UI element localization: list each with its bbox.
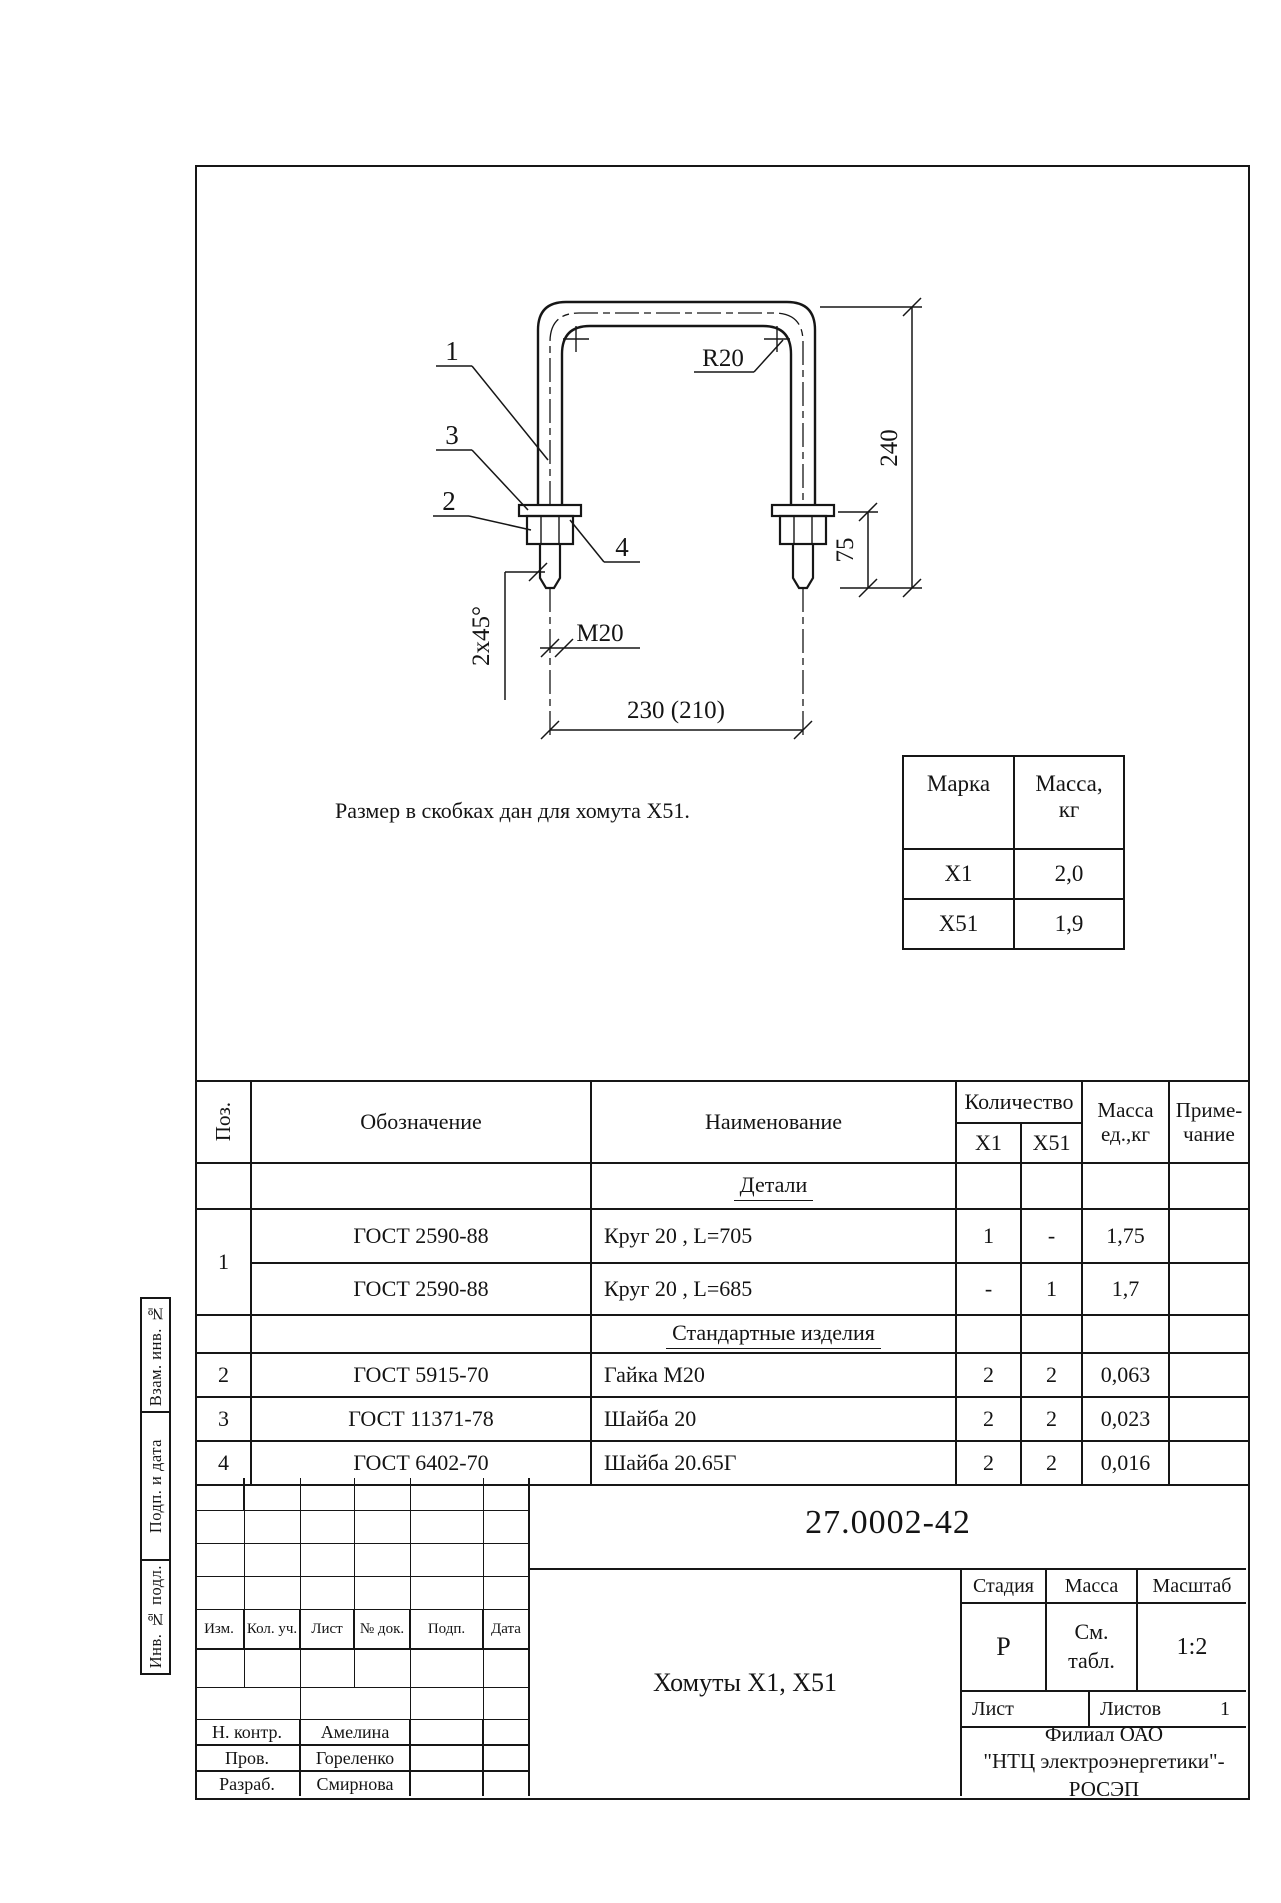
row-designation: ГОСТ 2590-88 xyxy=(251,1263,591,1315)
dim-chamfer-lines xyxy=(505,563,547,700)
parts-header-row1: Поз. Обозначение Наименование Количество… xyxy=(196,1081,1249,1123)
mass-table-row: Х51 1,9 xyxy=(903,899,1124,949)
row-name: Гайка М20 xyxy=(591,1353,956,1397)
sidebar-box-podp: Подп. и дата xyxy=(140,1411,171,1561)
row-name: Круг 20 , L=685 xyxy=(591,1263,956,1315)
row-pos: 3 xyxy=(196,1397,251,1441)
sidebar-label: Инв. № подл. xyxy=(146,1565,166,1668)
header-mass: Массаед.,кг xyxy=(1082,1081,1169,1163)
mark-x1: Х1 xyxy=(903,849,1014,899)
dim-radius-label: R20 xyxy=(702,345,744,372)
section-row-standard: Стандартные изделия xyxy=(196,1315,1249,1353)
callout-2-label: 2 xyxy=(442,486,456,516)
dim-chamfer-label: 2х45° xyxy=(468,606,495,666)
row-qty-x1: 2 xyxy=(956,1353,1021,1397)
row-designation: ГОСТ 5915-70 xyxy=(251,1353,591,1397)
row-designation: ГОСТ 2590-88 xyxy=(251,1209,591,1263)
mass-table: Марка Масса, кг Х1 2,0 Х51 1,9 xyxy=(902,755,1125,950)
callout-1-label: 1 xyxy=(445,336,459,366)
sig-name: Гореленко xyxy=(301,1746,411,1772)
right-nut xyxy=(780,516,826,544)
parts-row: 3 ГОСТ 11371-78 Шайба 20 2 2 0,023 xyxy=(196,1397,1249,1441)
section-standard: Стандартные изделия xyxy=(591,1315,956,1353)
callout-4-label: 4 xyxy=(615,532,629,562)
mass-table-col-mass: Масса, кг xyxy=(1014,756,1124,849)
mass-label: Масса xyxy=(1047,1570,1138,1604)
row-name: Шайба 20 xyxy=(591,1397,956,1441)
row-qty-x1: 2 xyxy=(956,1397,1021,1441)
row-designation: ГОСТ 11371-78 xyxy=(251,1397,591,1441)
sidebar-label: Подп. и дата xyxy=(146,1439,166,1533)
doc-number: 27.0002-42 xyxy=(530,1478,1246,1570)
header-note: Приме-чание xyxy=(1169,1081,1249,1163)
rev-header-podp: Подп. xyxy=(411,1610,484,1650)
scale-label: Масштаб xyxy=(1138,1570,1246,1604)
sig-role: Пров. xyxy=(195,1746,301,1772)
parts-row: 2 ГОСТ 5915-70 Гайка М20 2 2 0,063 xyxy=(196,1353,1249,1397)
sidebar-box-vzam: Взам. инв. № xyxy=(140,1297,171,1413)
header-name: Наименование xyxy=(591,1081,956,1163)
header-designation: Обозначение xyxy=(251,1081,591,1163)
row-qty-x51: 1 xyxy=(1021,1263,1082,1315)
mass-x51: 1,9 xyxy=(1014,899,1124,949)
organization: Филиал ОАО "НТЦ электроэнергетики"- РОСЭ… xyxy=(962,1728,1246,1796)
header-qty-x1: Х1 xyxy=(956,1123,1021,1163)
section-details: Детали xyxy=(591,1163,956,1209)
left-nut xyxy=(527,516,573,544)
row-qty-x51: - xyxy=(1021,1209,1082,1263)
header-qty-x51: Х51 xyxy=(1021,1123,1082,1163)
title-block: Изм. Кол. уч. Лист № док. Подп. Дата Н. … xyxy=(195,1478,1246,1796)
rod-inner-line xyxy=(562,326,791,505)
row-mass: 1,75 xyxy=(1082,1209,1169,1263)
dim-height-label: 240 xyxy=(876,429,903,467)
right-thread-stub xyxy=(793,544,813,588)
row-pos: 1 xyxy=(196,1209,251,1315)
sidebar-label: Взам. инв. № xyxy=(146,1304,166,1406)
header-pos: Поз. xyxy=(196,1081,251,1163)
rev-header-data: Дата xyxy=(484,1610,530,1650)
row-pos: 2 xyxy=(196,1353,251,1397)
callout-3-label: 3 xyxy=(445,420,459,450)
dim-thread-len-label: 75 xyxy=(832,538,859,563)
rod-outer-line xyxy=(538,302,815,505)
sheets-value: 1 xyxy=(1220,1698,1230,1721)
sig-name: Смирнова xyxy=(301,1772,411,1796)
row-qty-x51: 2 xyxy=(1021,1353,1082,1397)
row-mass: 0,023 xyxy=(1082,1397,1169,1441)
mass-table-header: Марка Масса, кг xyxy=(903,756,1124,849)
parts-table: Поз. Обозначение Наименование Количество… xyxy=(195,1080,1250,1486)
mark-x51: Х51 xyxy=(903,899,1014,949)
mass-value: См.табл. xyxy=(1047,1604,1138,1692)
sidebar-box-inv: Инв. № подл. xyxy=(140,1559,171,1675)
rev-header-list: Лист xyxy=(301,1610,355,1650)
mass-x1: 2,0 xyxy=(1014,849,1124,899)
header-qty: Количество xyxy=(956,1081,1082,1123)
rev-header-dok: № док. xyxy=(355,1610,411,1650)
row-qty-x1: - xyxy=(956,1263,1021,1315)
sheets-label: Листов xyxy=(1100,1698,1161,1721)
callout-leaders xyxy=(433,366,640,562)
scale-value: 1:2 xyxy=(1138,1604,1246,1692)
bend-center-cross xyxy=(563,326,790,352)
row-name: Круг 20 , L=705 xyxy=(591,1209,956,1263)
row-qty-x1: 1 xyxy=(956,1209,1021,1263)
parts-row: ГОСТ 2590-88 Круг 20 , L=685 - 1 1,7 xyxy=(196,1263,1249,1315)
rod-centerline xyxy=(550,313,803,505)
section-row-details: Детали xyxy=(196,1163,1249,1209)
right-washer xyxy=(772,505,834,516)
mass-table-col-mark: Марка xyxy=(903,756,1014,849)
stage-value: Р xyxy=(962,1604,1047,1692)
left-washer xyxy=(519,505,581,516)
stage-label: Стадия xyxy=(962,1570,1047,1604)
rev-header-kol: Кол. уч. xyxy=(245,1610,301,1650)
bracket-note: Размер в скобках дан для хомута Х51. xyxy=(335,798,690,824)
rev-header-izm: Изм. xyxy=(195,1610,245,1650)
drawing-sheet: Взам. инв. № Подп. и дата Инв. № подл. xyxy=(0,0,1281,1903)
sig-name: Амелина xyxy=(301,1720,411,1746)
parts-row: 1 ГОСТ 2590-88 Круг 20 , L=705 1 - 1,75 xyxy=(196,1209,1249,1263)
row-mass: 0,063 xyxy=(1082,1353,1169,1397)
mass-table-row: Х1 2,0 xyxy=(903,849,1124,899)
row-mass: 1,7 xyxy=(1082,1263,1169,1315)
sig-role: Разраб. xyxy=(195,1772,301,1796)
assembly-title: Хомуты Х1, Х51 xyxy=(530,1570,962,1796)
dim-width-label: 230 (210) xyxy=(627,697,725,724)
row-qty-x51: 2 xyxy=(1021,1397,1082,1441)
dim-thread-label: М20 xyxy=(576,620,623,647)
sig-role: Н. контр. xyxy=(195,1720,301,1746)
